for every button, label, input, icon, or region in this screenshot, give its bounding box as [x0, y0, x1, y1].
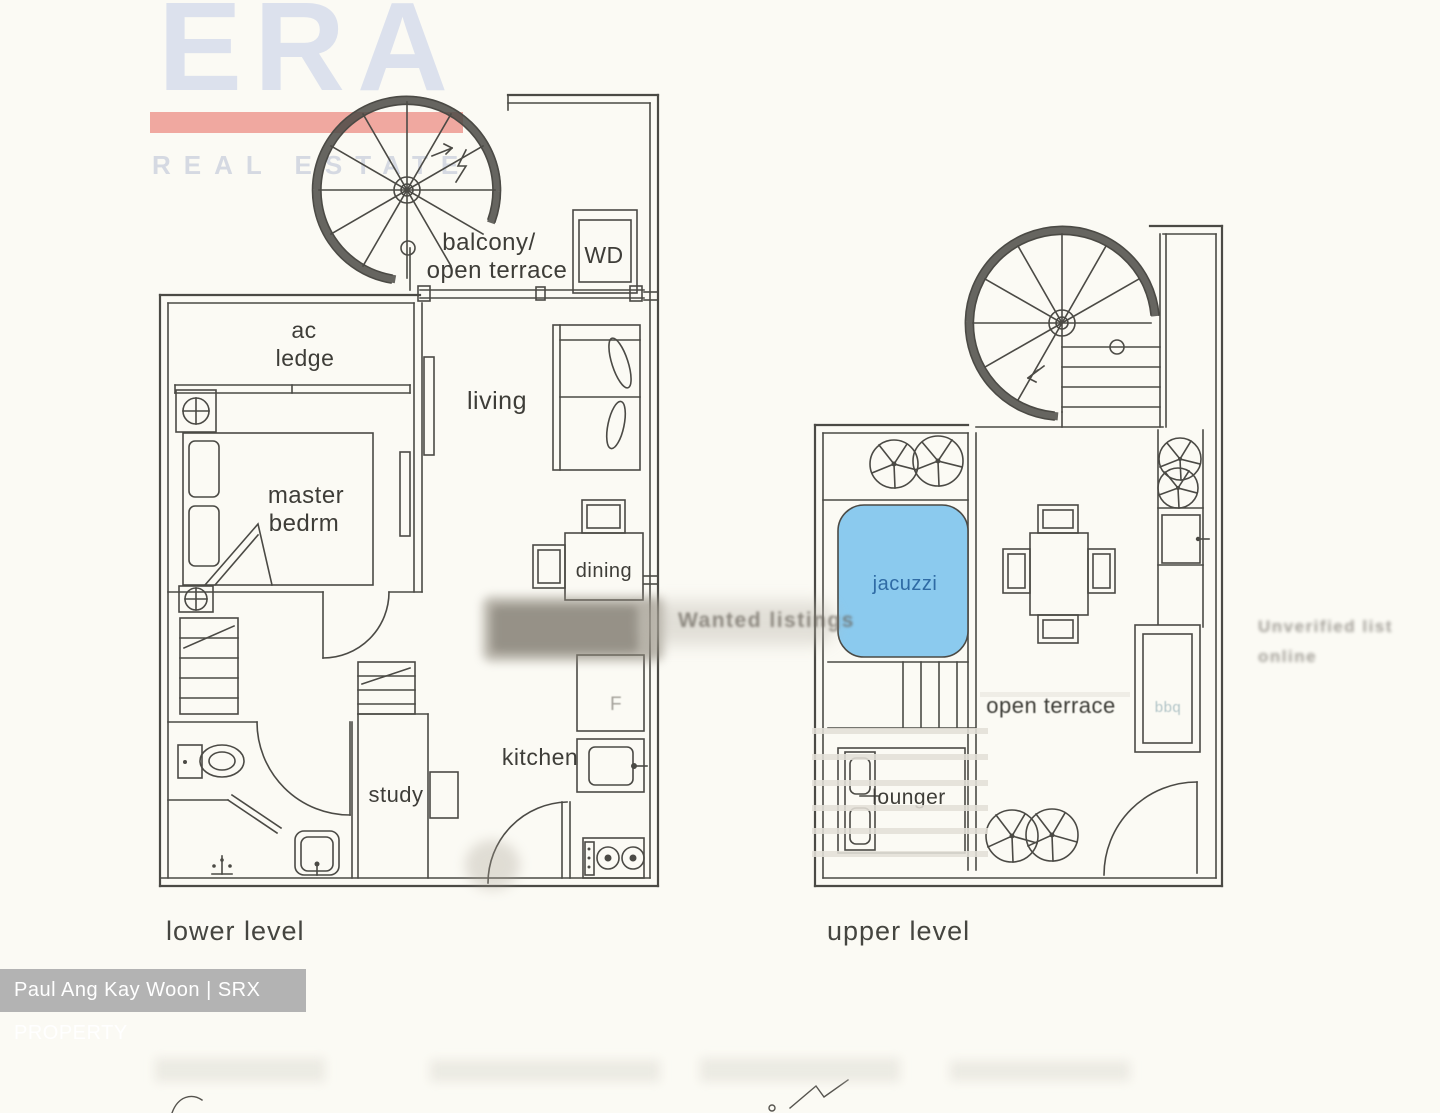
planter-top [823, 436, 968, 500]
lower-level-plan: balcony/ open terrace WD ac ledge master… [160, 95, 658, 946]
faint-ghost-band [155, 1058, 325, 1082]
stair-direction-arrow [432, 144, 452, 156]
terrace-table-set [1003, 505, 1115, 643]
toilet [178, 745, 244, 778]
straight-stair-flight [1062, 234, 1166, 427]
wall-fixture-symbol-top [176, 390, 216, 432]
credit-watermark-bar: Paul Ang Kay Woon | SRX PROPERTY [0, 969, 306, 1012]
spiral-staircase-upper [965, 226, 1166, 427]
label-bedrm: bedrm [269, 510, 340, 537]
faint-ghost-band [700, 1058, 900, 1082]
erased-watermark-smudge-core [492, 606, 638, 652]
stair-break-symbol [456, 150, 466, 182]
erasure-stripe [812, 728, 988, 734]
right-strip-cabinet [1162, 515, 1209, 563]
fridge [577, 655, 644, 731]
ghost-watermark-right-line1: Unverified list [1258, 612, 1393, 642]
floorplan-drawing: balcony/ open terrace WD ac ledge master… [0, 0, 1440, 1113]
erasure-stripe [812, 754, 988, 760]
bathroom-door [257, 722, 350, 815]
plants-bottom [986, 809, 1078, 862]
jacuzzi-deck-slats [828, 662, 975, 728]
label-kitchen: kitchen [502, 744, 578, 770]
label-wd: WD [584, 242, 623, 268]
label-ac: ac [291, 317, 316, 343]
wall-fixture-symbol-bottom [179, 586, 213, 612]
label-living: living [467, 387, 527, 415]
label-balcony-line1: balcony/ [442, 229, 535, 256]
upper-level-plan: jacuzzi open terrace lounger bbq upper l… [815, 226, 1222, 946]
ghost-watermark-right-line2: online [1258, 642, 1393, 672]
shower [168, 795, 281, 874]
bbq-unit [1135, 625, 1200, 752]
caption-lower-level: lower level [166, 916, 305, 946]
right-strip [1158, 430, 1209, 627]
erased-smudge-kitchen [465, 840, 520, 890]
master-bed [183, 433, 373, 585]
lower-exterior-walls [160, 95, 658, 886]
bedroom-living-partition [400, 303, 434, 592]
faint-ghost-band [430, 1060, 660, 1082]
wardrobe-left [180, 618, 238, 714]
bathroom [168, 722, 352, 878]
terrace-door [1104, 782, 1197, 875]
ghost-watermark-center: Wanted listings [678, 609, 855, 633]
faint-ghost-band [950, 1061, 1130, 1081]
label-bbq: bbq [1155, 699, 1182, 716]
erasure-stripe [980, 692, 1130, 697]
study-desk [430, 772, 458, 818]
caption-upper-level: upper level [827, 916, 970, 946]
bottom-edge-partial-drawings [172, 1080, 848, 1113]
kitchen-sink-counter [577, 739, 647, 792]
label-study: study [368, 782, 423, 807]
label-master: master [268, 482, 344, 509]
label-fridge: F [610, 694, 622, 715]
dining-set [533, 500, 643, 600]
erasure-stripe [812, 805, 988, 811]
floorplan-sheet: ERA REAL ESTATE [0, 0, 1440, 1113]
stove [583, 838, 644, 878]
erasure-stripe [812, 780, 988, 786]
label-dining: dining [576, 560, 632, 582]
label-balcony-line2: open terrace [427, 257, 568, 284]
erasure-stripe [812, 828, 988, 834]
label-jacuzzi: jacuzzi [872, 573, 938, 595]
label-ledge: ledge [276, 345, 335, 371]
erasure-stripe [812, 851, 988, 857]
bathroom-sink [295, 831, 339, 875]
wardrobe-right [358, 662, 415, 714]
living-sofa [553, 325, 640, 470]
ac-ledge-window [175, 385, 410, 393]
ghost-watermark-right: Unverified list online [1258, 612, 1393, 672]
